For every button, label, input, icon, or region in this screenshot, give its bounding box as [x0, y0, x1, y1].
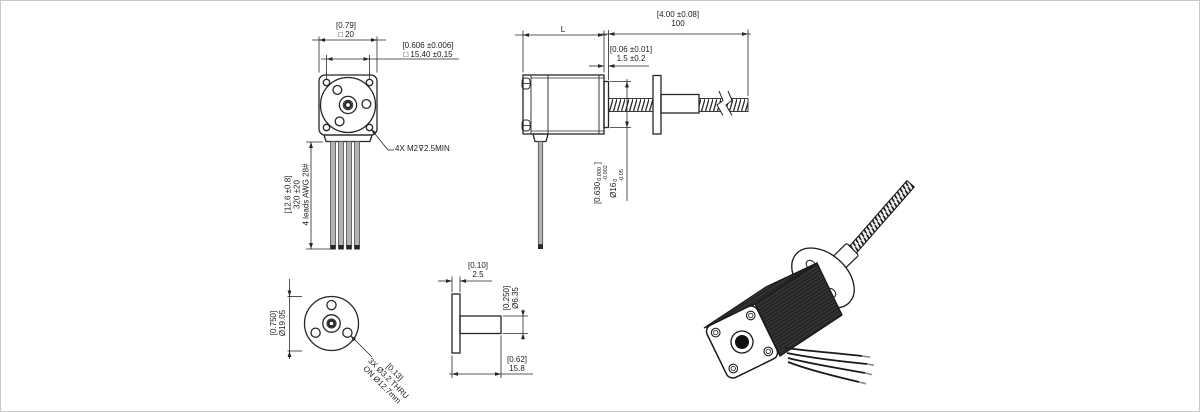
pilot-dia-inch: [0.6300.000-0.002] — [593, 148, 609, 218]
render-lead-screw — [846, 181, 914, 257]
lead-connector — [324, 135, 372, 142]
nut-side-view — [452, 294, 501, 353]
lead-screw-threads — [609, 99, 654, 112]
dim-flange-diameter-label: [0.750] Ø19.05 — [269, 295, 287, 351]
motor-front-body — [319, 75, 377, 135]
engineering-drawing-canvas: [0.79] □ 20 [0.606 ±0.006] □ 15.40 ±0.15… — [0, 0, 1200, 412]
nut-screw-bore — [329, 321, 335, 327]
dim-flange-thickness-label: [0.10] 2.5 — [468, 261, 488, 279]
lead-wire-tip — [538, 245, 543, 250]
flange-nut-plate — [653, 76, 661, 135]
render-lead-wires — [785, 348, 874, 384]
nut-hub — [339, 96, 356, 113]
nut-front-view — [305, 297, 359, 351]
lead-connector — [533, 134, 548, 142]
flange-nut-outline — [321, 78, 376, 133]
motor-side-body — [523, 75, 604, 134]
dim-barrel-diameter-label: [0.250] Ø6.35 — [502, 270, 520, 326]
lead-wires — [330, 142, 360, 250]
dim-screw-length-label: [4.00 ±0.08] 100 — [657, 10, 699, 28]
motor-front-view — [319, 75, 377, 250]
dim-pilot-height-label: [0.06 ±0.01] 1.5 ±0.2 — [610, 45, 652, 63]
nut-plate — [452, 294, 460, 353]
nut-barrel — [460, 316, 501, 334]
dim-hole-spacing-label: [0.606 ±0.006] □ 15.40 ±0.15 — [402, 41, 453, 59]
front-view-dimension-lines — [306, 37, 459, 250]
render-3d — [704, 181, 914, 384]
nut-hole — [311, 328, 320, 337]
dim-body-width-label: [0.79] □ 20 — [336, 21, 356, 39]
lead-wire — [538, 142, 542, 245]
lead-screw-section — [345, 102, 351, 108]
flange-nut-hole — [335, 117, 344, 126]
dim-pilot-diameter-label: [0.6300.000-0.002] Ø160-0.05 — [593, 148, 625, 218]
flange-nut-barrel — [661, 95, 699, 114]
nut-flange-outline — [305, 297, 359, 351]
mounting-callout-label: 4X M2⊽2.5MIN — [395, 144, 450, 153]
pilot-dia-mm: Ø160-0.05 — [609, 148, 625, 218]
flange-nut-hole — [333, 86, 342, 95]
dim-overall-length-label: [0.62] 15.8 — [507, 355, 527, 373]
nut-hole — [327, 301, 336, 310]
leads-length-label: [12.6 ±0.8] 320 ±20 4 leads AWG 28# — [284, 153, 311, 237]
dim-body-length-label: L — [561, 25, 565, 34]
flange-nut-hole — [362, 100, 371, 109]
nut-hub — [323, 315, 340, 332]
pilot-boss — [604, 82, 609, 128]
motor-side-view — [522, 75, 748, 249]
